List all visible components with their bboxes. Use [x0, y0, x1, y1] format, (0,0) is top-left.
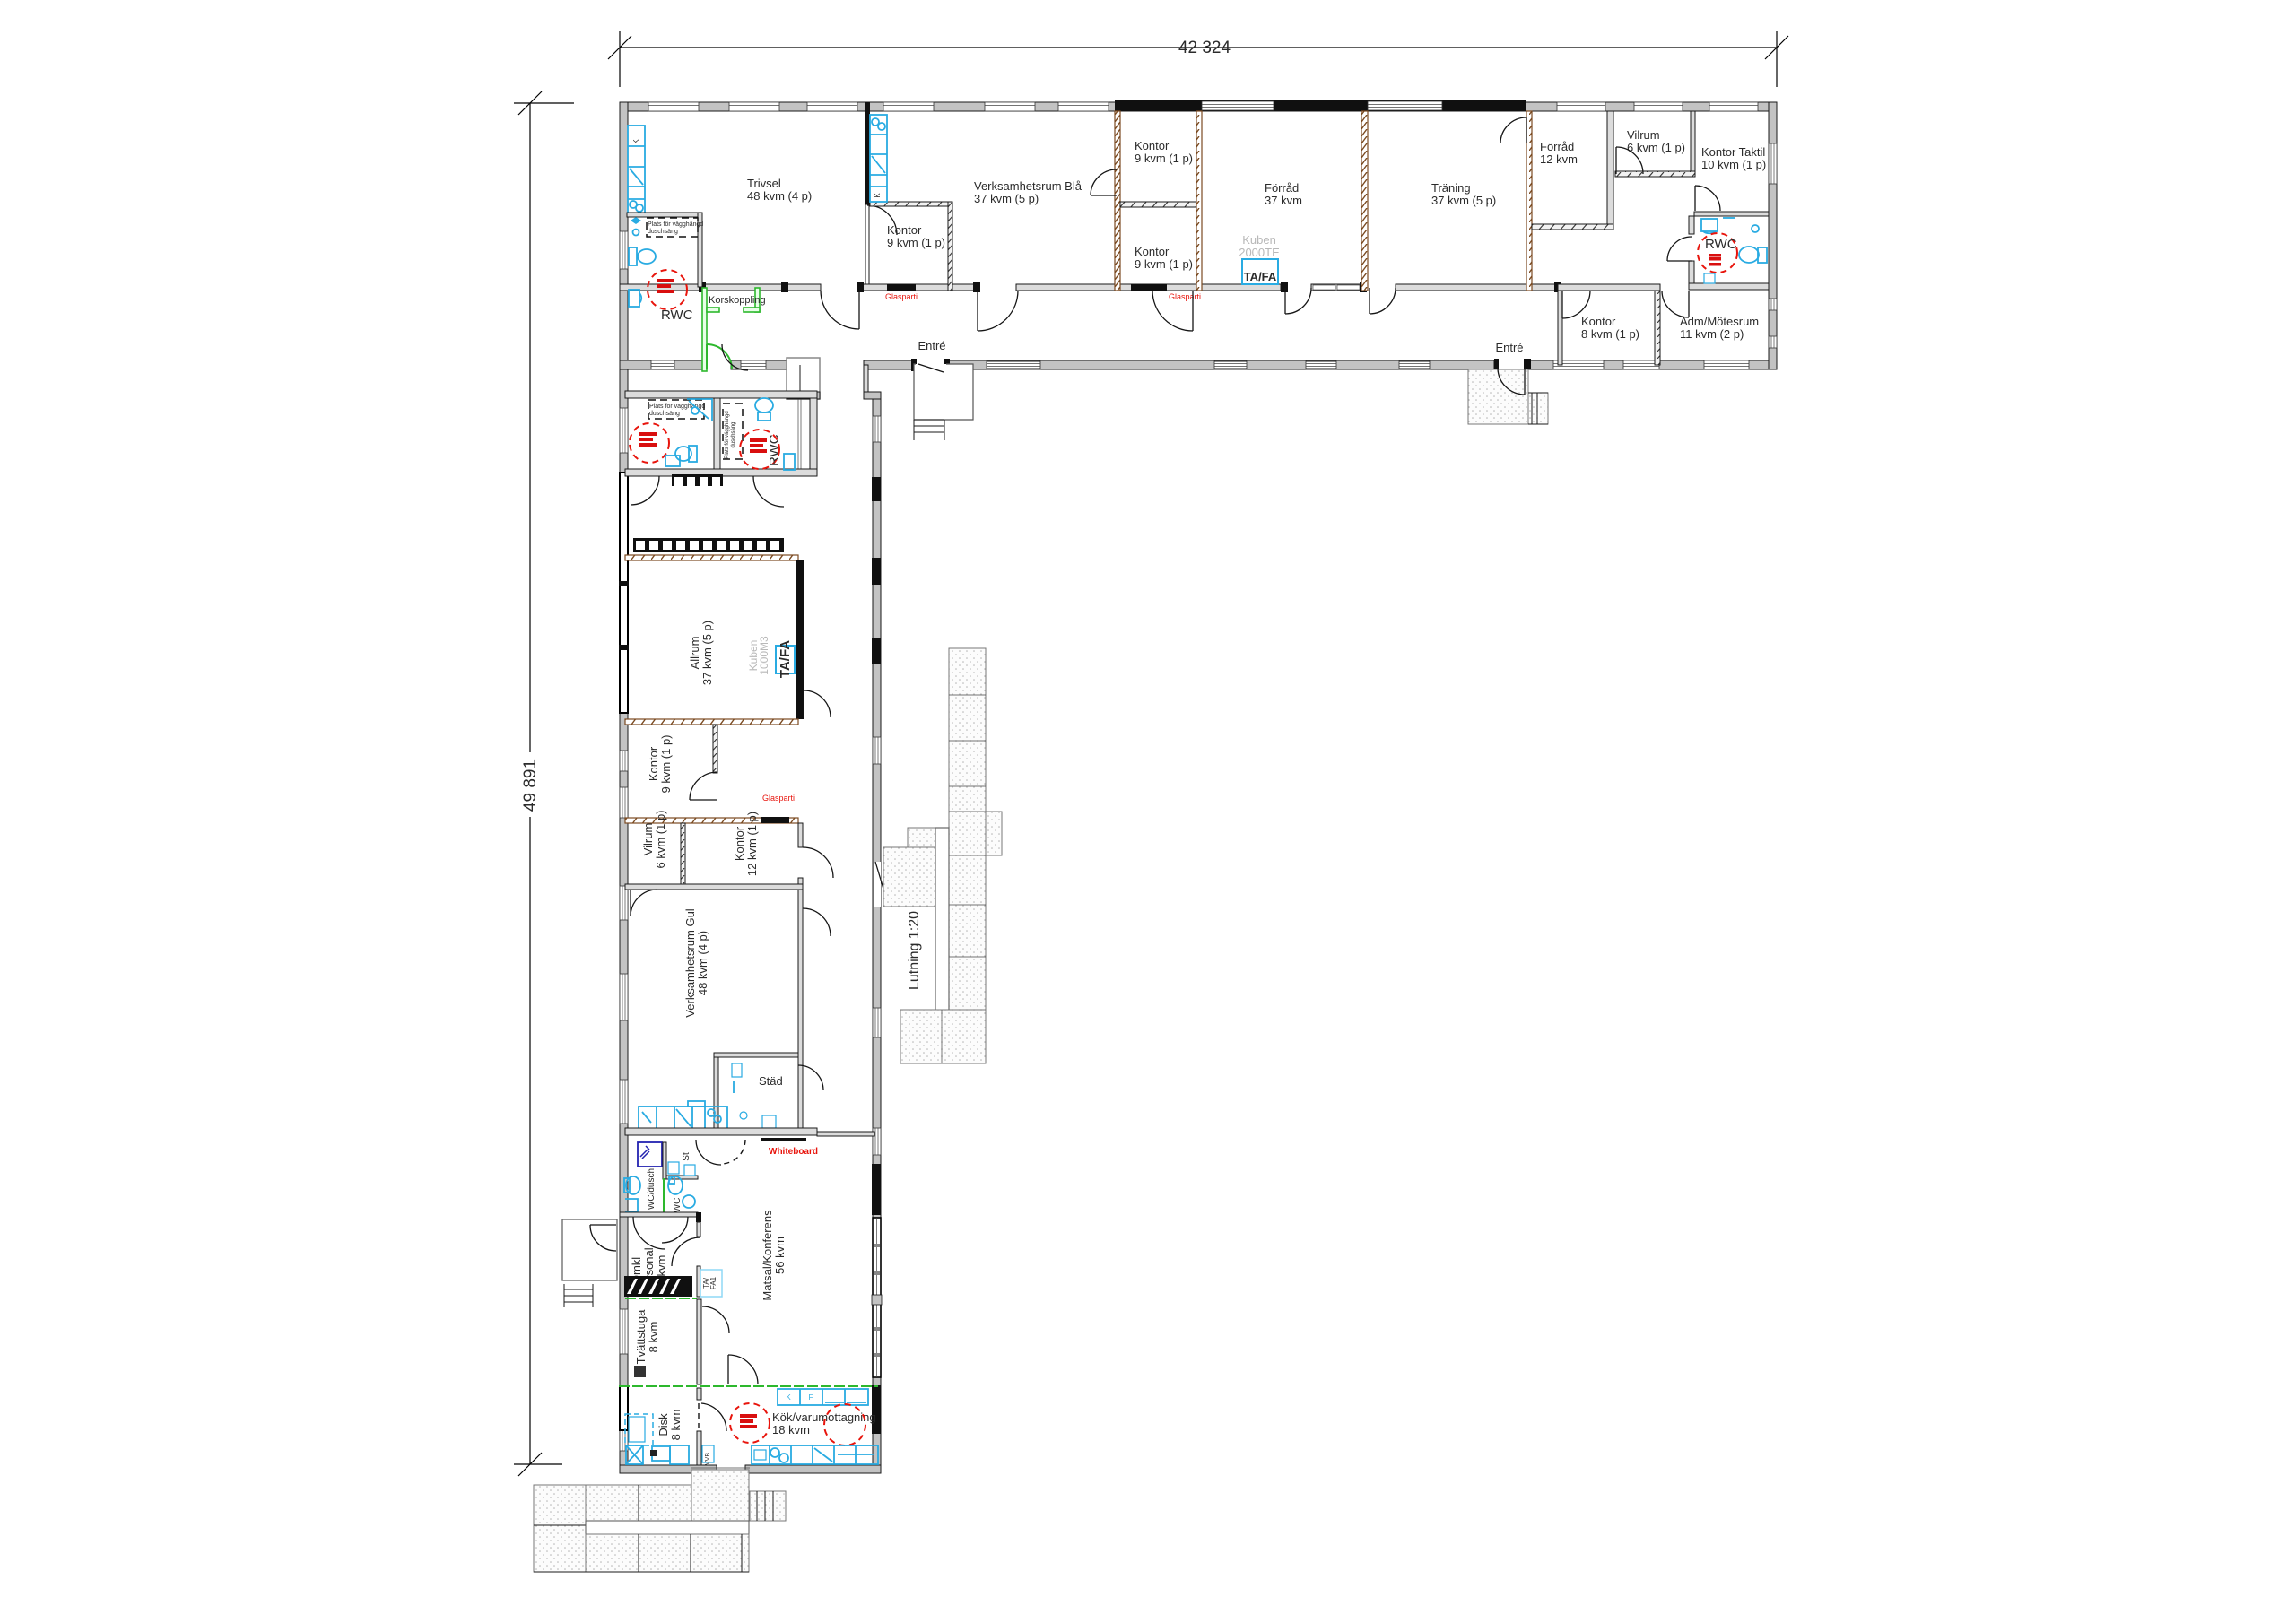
svg-text:12 kvm: 12 kvm: [1540, 152, 1578, 166]
svg-text:Whiteboard: Whiteboard: [769, 1147, 818, 1157]
svg-text:48 kvm (4 p): 48 kvm (4 p): [696, 931, 709, 995]
svg-text:Entré: Entré: [918, 339, 945, 352]
svg-text:duschsäng: duschsäng: [649, 411, 680, 417]
svg-text:duschsäng: duschsäng: [648, 229, 678, 235]
svg-text:8 kvm: 8 kvm: [669, 1410, 683, 1441]
svg-text:48 kvm (4 p): 48 kvm (4 p): [747, 189, 812, 203]
svg-text:Plats för vägghängd: Plats för vägghängd: [725, 411, 730, 458]
svg-text:37 kvm (5 p): 37 kvm (5 p): [974, 192, 1039, 205]
svg-text:12 kvm (1 p): 12 kvm (1 p): [745, 811, 759, 876]
svg-text:8 kvm (1 p): 8 kvm (1 p): [1581, 327, 1639, 341]
svg-text:K: K: [786, 1393, 791, 1402]
svg-text:Trivsel: Trivsel: [747, 177, 781, 190]
svg-text:RWC: RWC: [661, 308, 693, 323]
svg-text:TA/FA: TA/FA: [1244, 270, 1277, 283]
svg-text:Verksamhetsrum Blå: Verksamhetsrum Blå: [974, 179, 1083, 193]
svg-text:8 kvm: 8 kvm: [647, 1322, 660, 1353]
svg-text:Glasparti: Glasparti: [1169, 292, 1201, 301]
svg-text:11 kvm (2 p): 11 kvm (2 p): [1680, 327, 1744, 341]
svg-text:37 kvm (5 p): 37 kvm (5 p): [700, 621, 714, 685]
svg-text:Förråd: Förråd: [1265, 181, 1299, 195]
svg-text:duschsäng: duschsäng: [731, 421, 736, 447]
svg-text:K: K: [874, 193, 882, 198]
svg-text:Kontor: Kontor: [733, 826, 746, 861]
svg-text:37 kvm (5 p): 37 kvm (5 p): [1431, 194, 1496, 207]
svg-text:9 kvm (1 p): 9 kvm (1 p): [659, 734, 673, 793]
svg-text:Kontor: Kontor: [647, 746, 660, 781]
svg-text:RWC: RWC: [767, 434, 782, 466]
svg-text:Matsal/Konferens: Matsal/Konferens: [761, 1210, 774, 1301]
svg-text:Lutning 1:20: Lutning 1:20: [907, 911, 922, 990]
svg-text:49 891: 49 891: [521, 759, 540, 811]
svg-text:1000M3: 1000M3: [758, 636, 770, 675]
svg-text:Vilrum: Vilrum: [641, 823, 655, 856]
svg-text:Entré: Entré: [1495, 341, 1523, 354]
svg-text:Tvättstuga: Tvättstuga: [634, 1309, 648, 1364]
svg-text:Vilrum: Vilrum: [1627, 128, 1660, 142]
svg-text:Förråd: Förråd: [1540, 140, 1574, 153]
svg-text:Glasparti: Glasparti: [885, 292, 918, 301]
svg-text:Korskoppling: Korskoppling: [709, 295, 766, 306]
svg-text:Plats för vägghängd: Plats för vägghängd: [648, 221, 703, 228]
svg-text:9 kvm (1 p): 9 kvm (1 p): [887, 236, 945, 249]
svg-text:Glasparti: Glasparti: [762, 794, 795, 803]
svg-text:VVB: VVB: [705, 1453, 711, 1465]
svg-text:Allrum: Allrum: [688, 637, 701, 670]
svg-text:Disk: Disk: [657, 1413, 670, 1436]
svg-text:10 kvm (1 p): 10 kvm (1 p): [1701, 158, 1766, 171]
svg-text:9 kvm (1 p): 9 kvm (1 p): [1135, 257, 1193, 271]
svg-text:18 kvm: 18 kvm: [772, 1423, 810, 1436]
svg-text:K: K: [632, 139, 640, 144]
svg-text:6 kvm (1 p): 6 kvm (1 p): [654, 810, 667, 868]
svg-text:Städ: Städ: [759, 1074, 783, 1088]
svg-text:Adm/Mötesrum: Adm/Mötesrum: [1680, 315, 1759, 328]
svg-text:WC: WC: [673, 1198, 683, 1213]
svg-text:Kontor: Kontor: [1135, 245, 1170, 258]
svg-text:FA1: FA1: [709, 1276, 717, 1289]
svg-text:Träning: Träning: [1431, 181, 1471, 195]
svg-text:2000TE: 2000TE: [1239, 246, 1280, 259]
svg-text:Kuben: Kuben: [1242, 233, 1276, 247]
svg-text:56 kvm: 56 kvm: [773, 1237, 787, 1274]
svg-text:Kontor: Kontor: [1135, 139, 1170, 152]
svg-text:6 kvm (1 p): 6 kvm (1 p): [1627, 141, 1685, 154]
svg-text:F: F: [809, 1393, 813, 1402]
svg-text:37 kvm: 37 kvm: [1265, 194, 1302, 207]
svg-text:WC/dusch: WC/dusch: [647, 1168, 657, 1210]
svg-text:TA/FA: TA/FA: [778, 640, 793, 678]
svg-text:9 kvm (1 p): 9 kvm (1 p): [1135, 152, 1193, 165]
svg-text:Kontor: Kontor: [1581, 315, 1616, 328]
svg-text:St: St: [682, 1152, 691, 1161]
svg-text:42 324: 42 324: [1178, 39, 1231, 57]
svg-text:Kontor Taktil: Kontor Taktil: [1701, 145, 1765, 159]
svg-text:Kontor: Kontor: [887, 223, 922, 237]
svg-text:RWC: RWC: [1705, 237, 1737, 252]
svg-text:Verksamhetsrum Gul: Verksamhetsrum Gul: [683, 908, 697, 1017]
